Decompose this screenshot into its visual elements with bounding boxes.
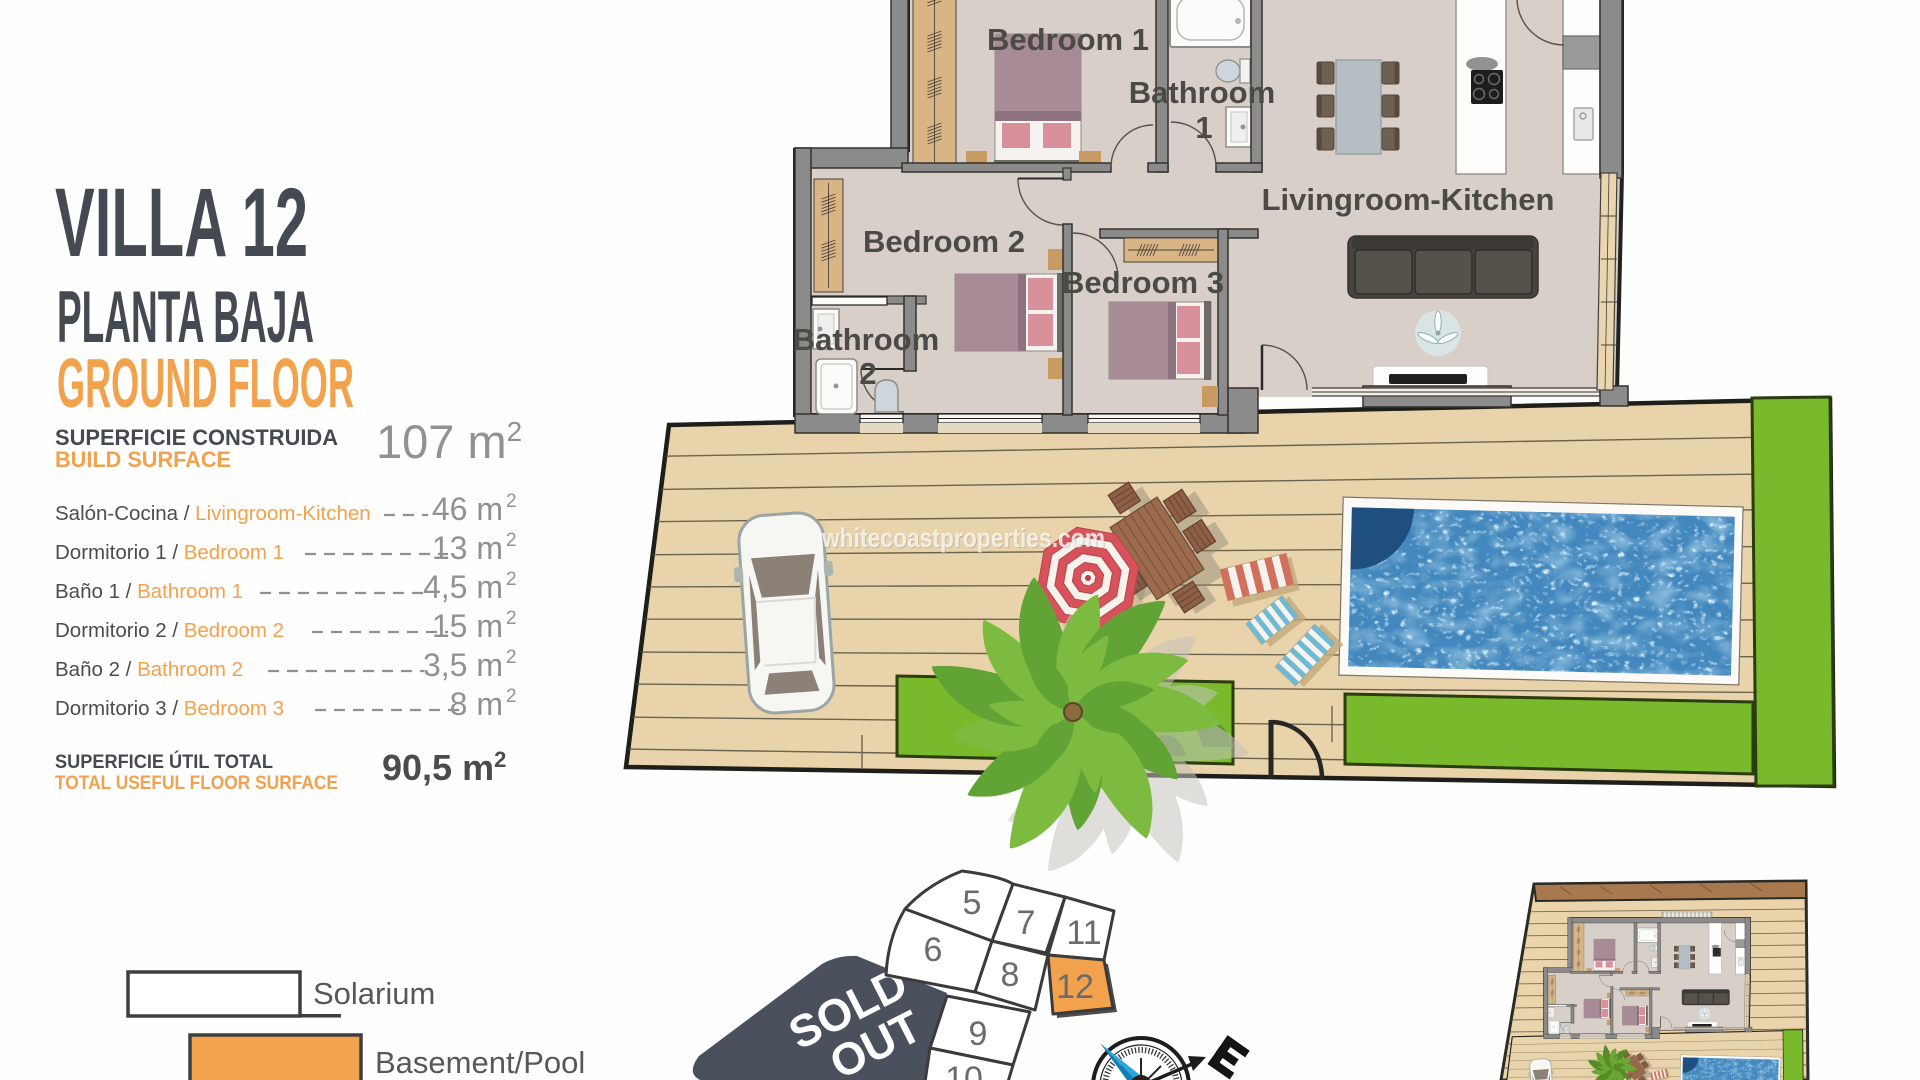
svg-text:46 m: 46 m [432,491,503,527]
svg-text:5: 5 [963,884,982,922]
svg-text:2: 2 [506,647,517,668]
svg-text:Livingroom-Kitchen: Livingroom-Kitchen [1262,182,1555,217]
svg-text:15 m: 15 m [432,608,503,644]
svg-text:Bedroom 3: Bedroom 3 [1062,265,1224,300]
svg-text:2: 2 [506,569,517,590]
svg-text:2: 2 [506,686,517,707]
svg-text:90,5 m2: 90,5 m2 [382,747,506,788]
svg-text:4,5 m: 4,5 m [423,569,503,605]
svg-text:Solarium: Solarium [313,976,435,1011]
svg-text:107 m2: 107 m2 [376,415,522,468]
svg-text:SUPERFICIE ÚTIL TOTAL: SUPERFICIE ÚTIL TOTAL [55,751,273,773]
svg-text:Dormitorio 2 / Bedroom 2: Dormitorio 2 / Bedroom 2 [55,619,284,642]
svg-text:Dormitorio 1 / Bedroom 1: Dormitorio 1 / Bedroom 1 [55,541,284,564]
svg-text:Baño 2 / Bathroom 2: Baño 2 / Bathroom 2 [55,658,243,681]
svg-text:Bathroom: Bathroom [793,322,939,357]
svg-text:9: 9 [969,1015,988,1053]
svg-text:1: 1 [1195,110,1212,145]
svg-text:2: 2 [506,491,517,512]
svg-text:TOTAL USEFUL FLOOR SURFACE: TOTAL USEFUL FLOOR SURFACE [55,773,338,794]
svg-text:whitecoastproperties.com: whitecoastproperties.com [821,523,1105,553]
svg-text:Salón-Cocina / Livingroom-Kitc: Salón-Cocina / Livingroom-Kitchen [55,502,371,525]
svg-text:2: 2 [859,356,876,391]
svg-text:2: 2 [506,608,517,629]
svg-text:2: 2 [506,530,517,551]
svg-text:Bedroom 1: Bedroom 1 [987,22,1149,57]
svg-text:Basement/Pool: Basement/Pool [375,1045,585,1080]
svg-text:8: 8 [1001,956,1020,994]
svg-text:Bathroom: Bathroom [1129,75,1275,110]
svg-text:VILLA 12: VILLA 12 [55,168,308,277]
svg-text:Bedroom 2: Bedroom 2 [863,224,1025,259]
svg-text:GROUND FLOOR: GROUND FLOOR [57,344,354,422]
svg-text:Dormitorio 3 / Bedroom 3: Dormitorio 3 / Bedroom 3 [55,697,284,720]
svg-text:13 m: 13 m [432,530,503,566]
svg-text:3,5 m: 3,5 m [423,647,503,683]
svg-text:10: 10 [945,1060,983,1080]
svg-text:7: 7 [1017,904,1036,942]
svg-text:12: 12 [1056,968,1094,1006]
svg-text:6: 6 [924,931,943,969]
svg-text:Baño 1 / Bathroom 1: Baño 1 / Bathroom 1 [55,580,243,603]
svg-text:BUILD SURFACE: BUILD SURFACE [55,447,231,472]
svg-text:11: 11 [1066,914,1101,952]
svg-text:8 m: 8 m [450,686,503,722]
